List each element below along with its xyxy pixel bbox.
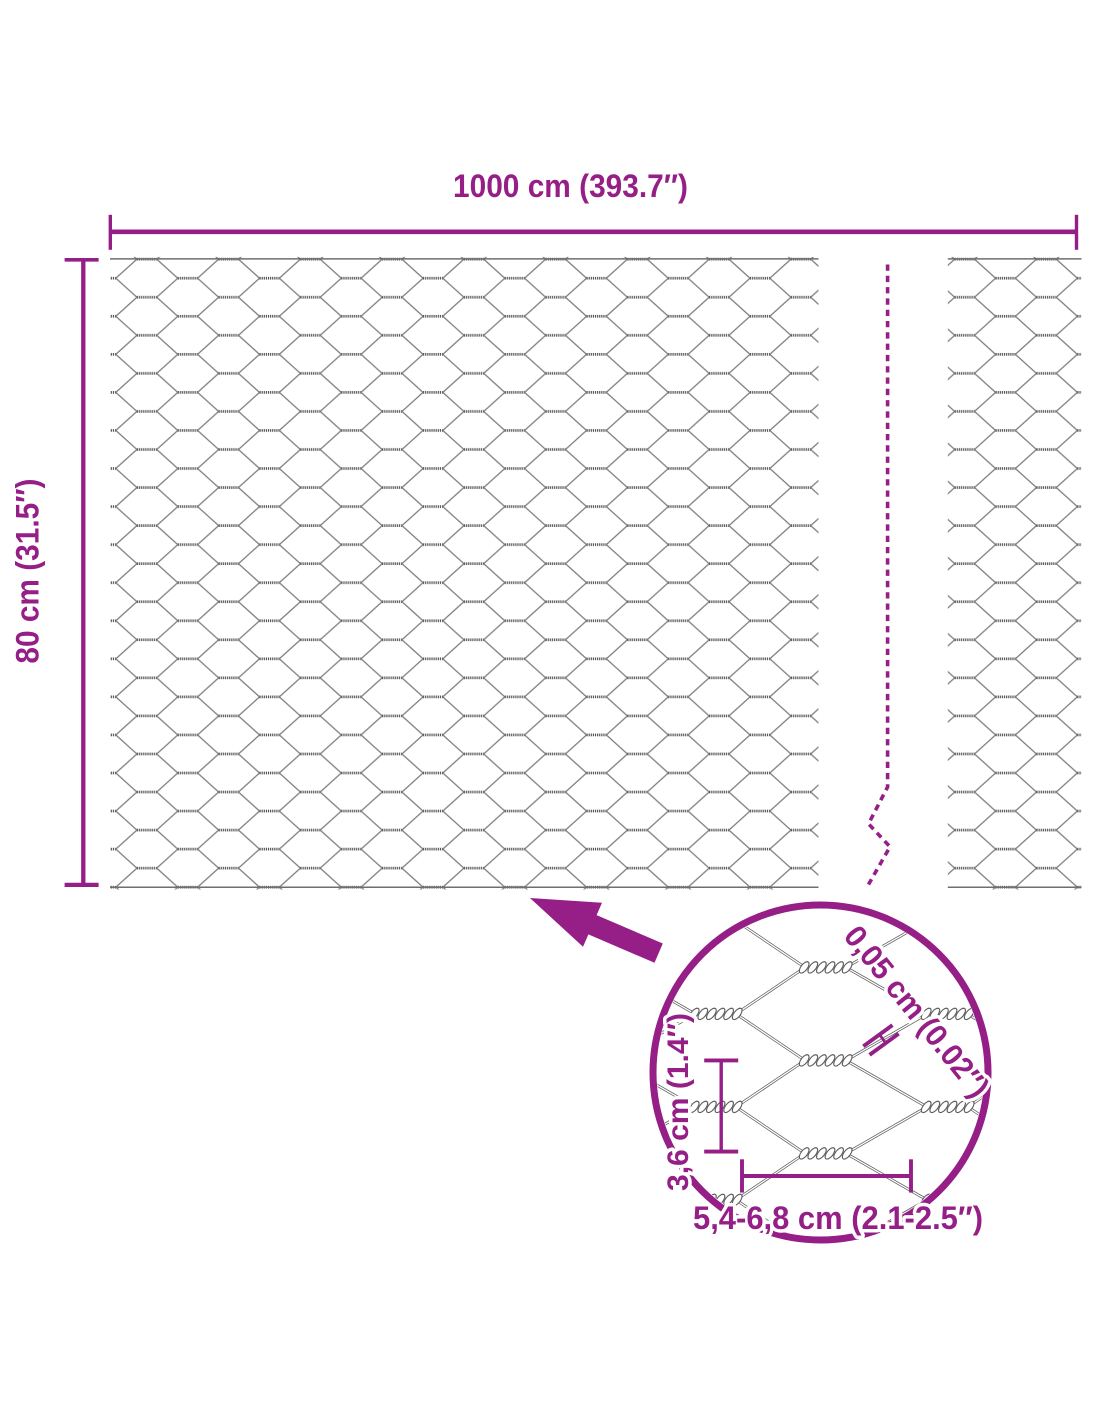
svg-text:5,4-6,8 cm (2.1-2.5″): 5,4-6,8 cm (2.1-2.5″) <box>693 1200 983 1236</box>
svg-text:3,6 cm (1.4″): 3,6 cm (1.4″) <box>662 1013 695 1191</box>
svg-text:1000 cm (393.7″): 1000 cm (393.7″) <box>453 168 688 204</box>
svg-text:80 cm (31.5″): 80 cm (31.5″) <box>10 479 46 664</box>
